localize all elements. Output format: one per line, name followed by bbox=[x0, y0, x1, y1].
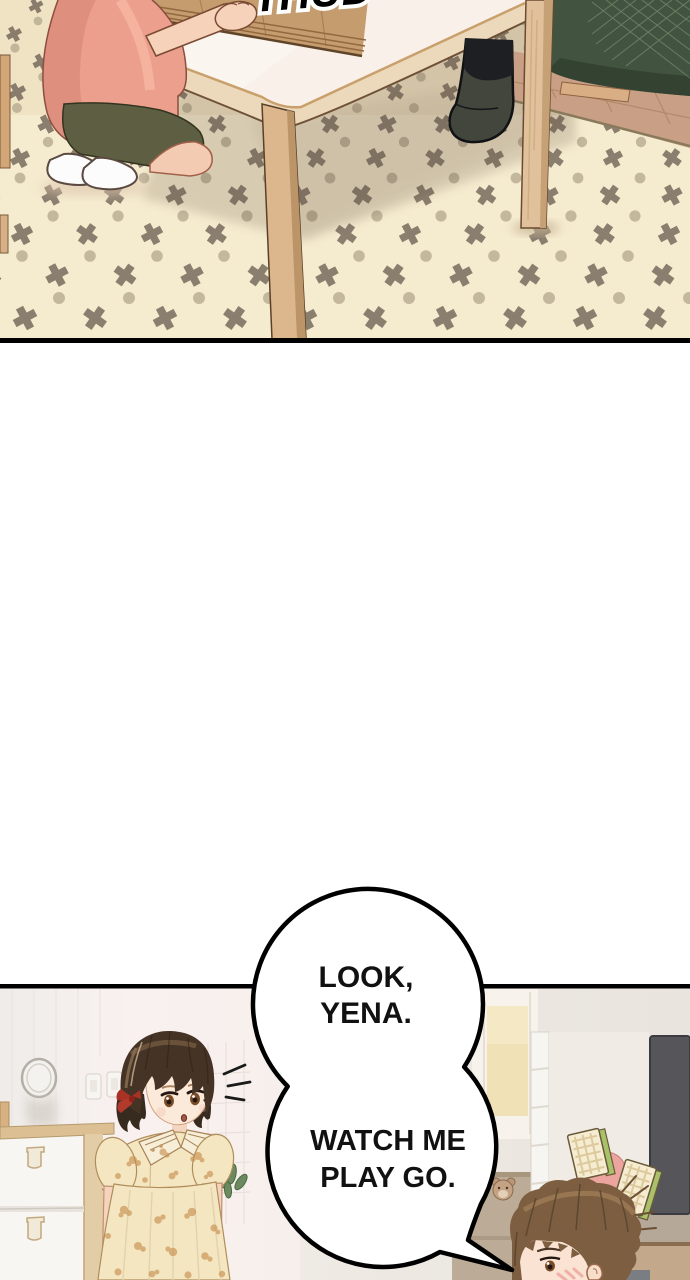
svg-text:PLAY GO.: PLAY GO. bbox=[320, 1162, 455, 1194]
svg-text:YENA.: YENA. bbox=[320, 997, 412, 1030]
svg-text:LOOK,: LOOK, bbox=[319, 961, 414, 994]
svg-text:WATCH ME: WATCH ME bbox=[310, 1125, 466, 1157]
